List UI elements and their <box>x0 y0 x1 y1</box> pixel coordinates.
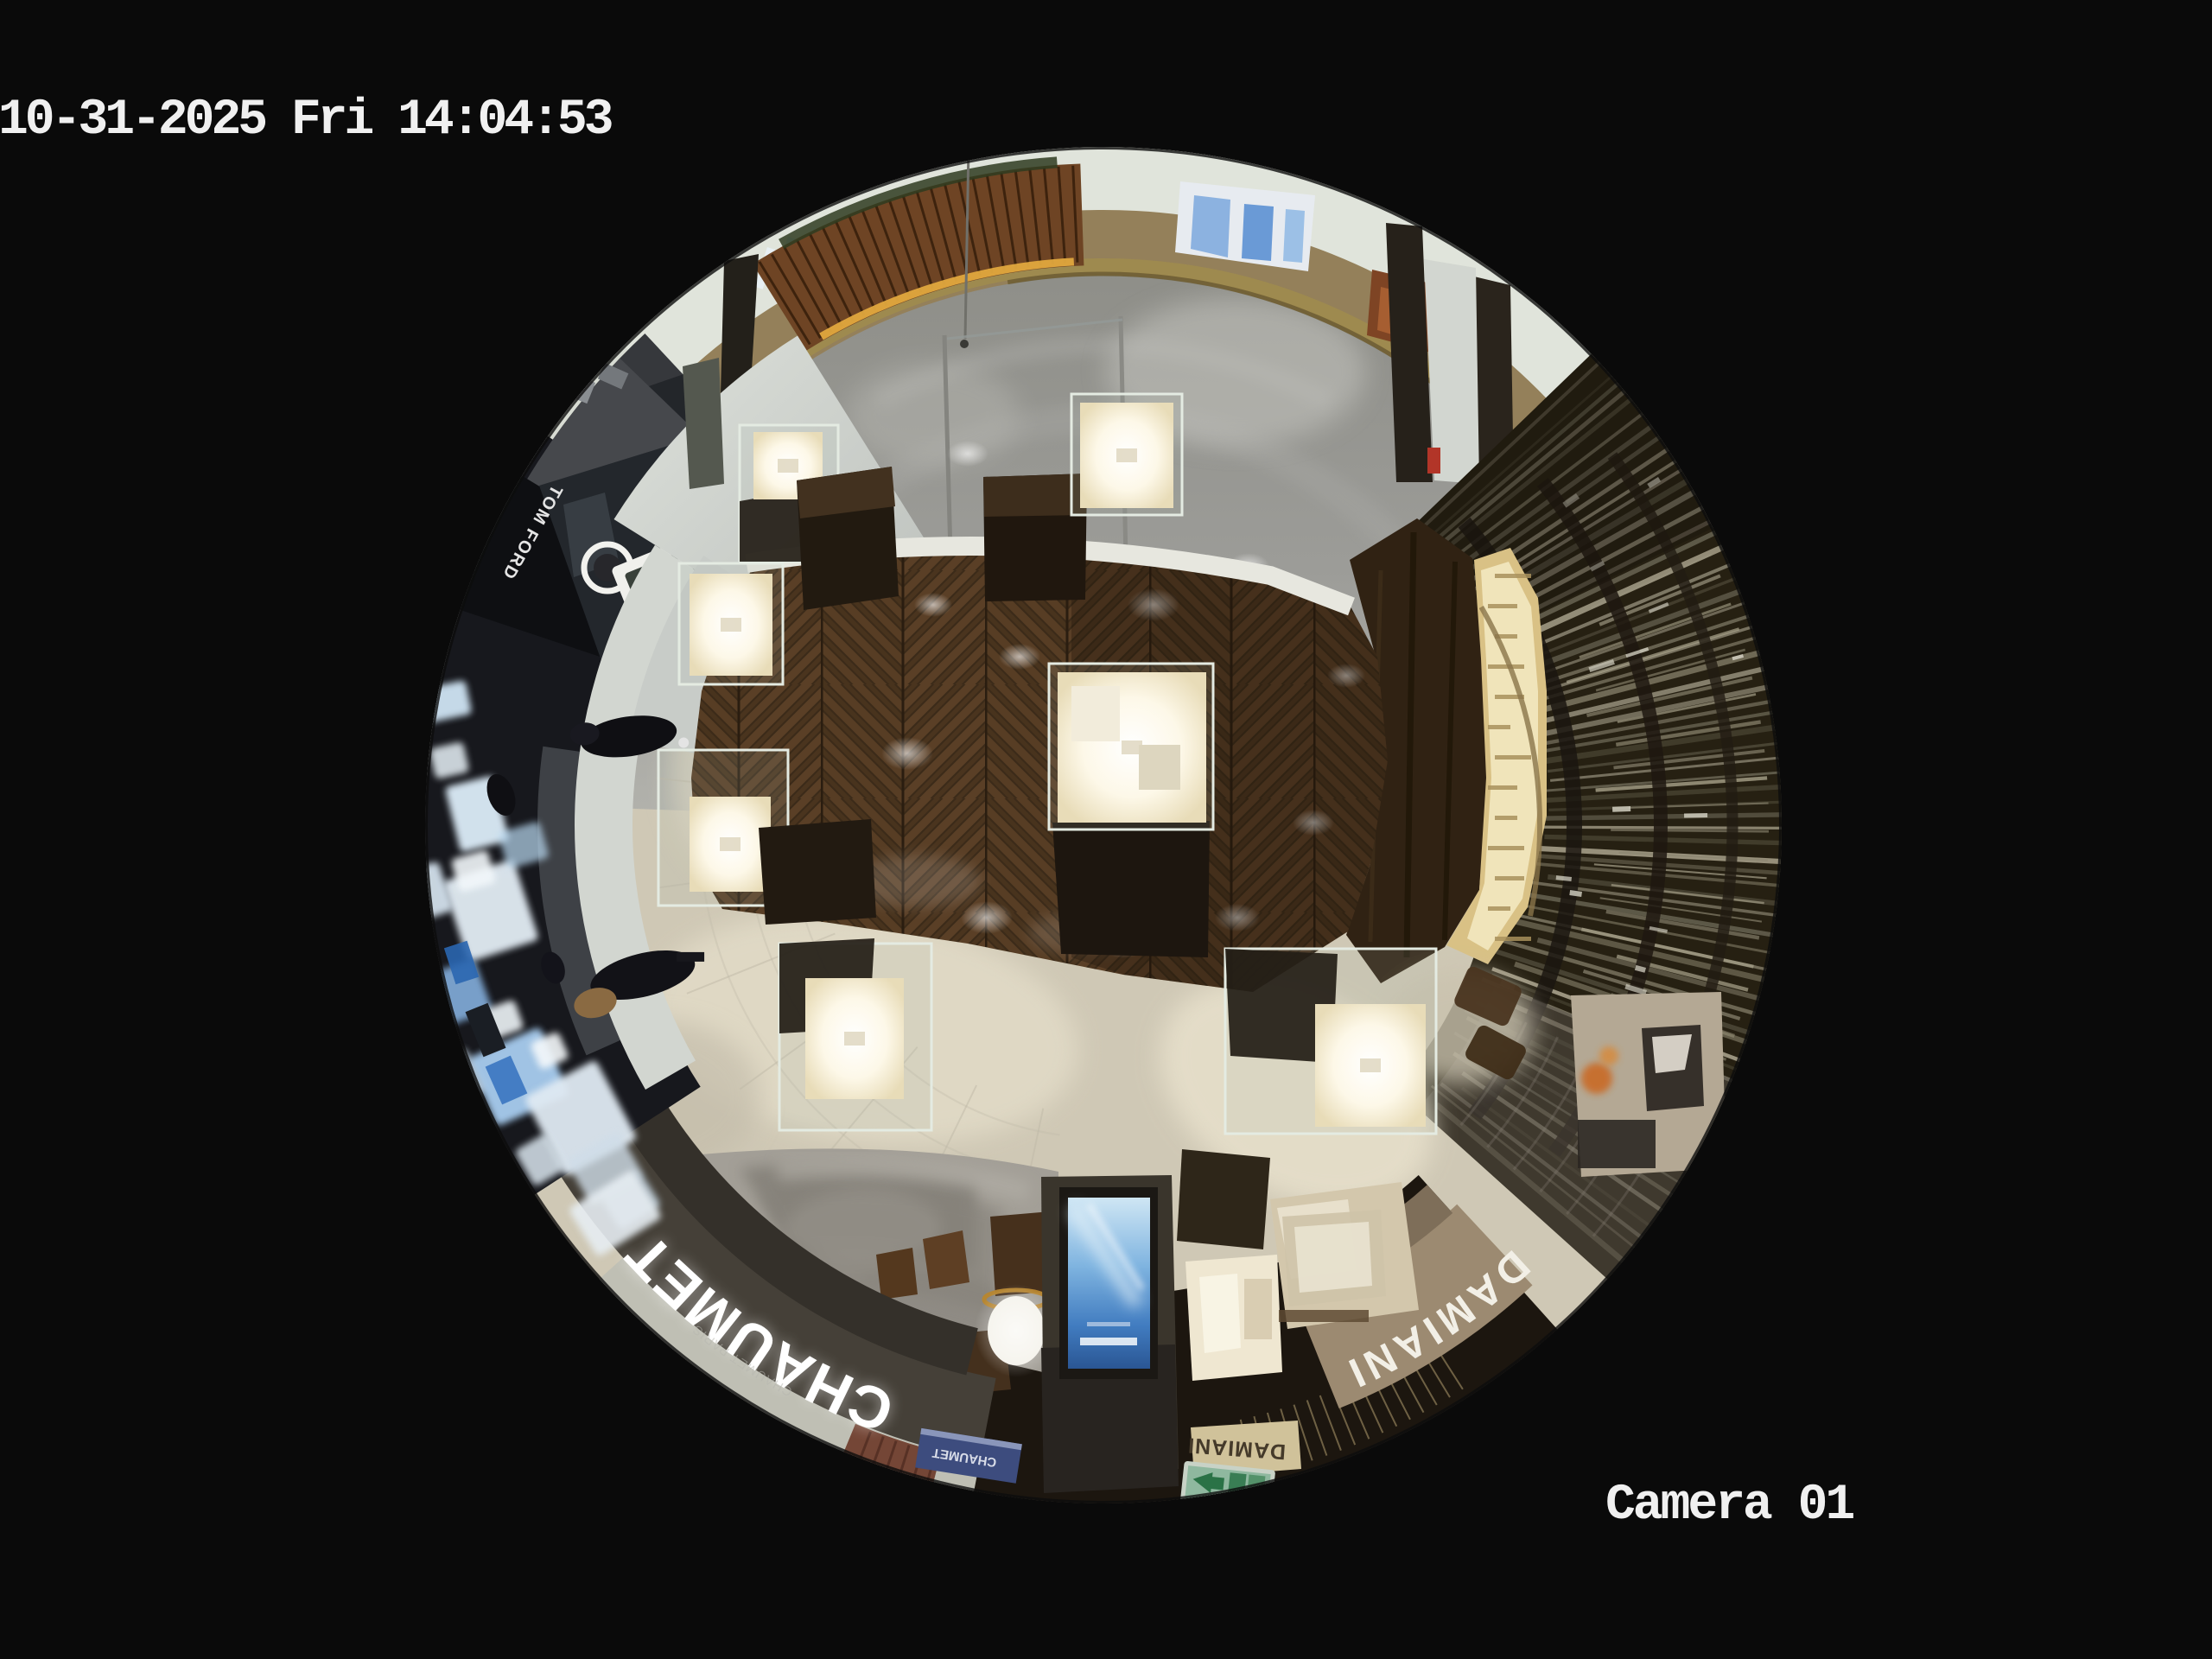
svg-text:Camera 01: Camera 01 <box>1605 1478 1853 1534</box>
svg-text:10-31-2025 Fri 14:04:53: 10-31-2025 Fri 14:04:53 <box>0 92 612 149</box>
